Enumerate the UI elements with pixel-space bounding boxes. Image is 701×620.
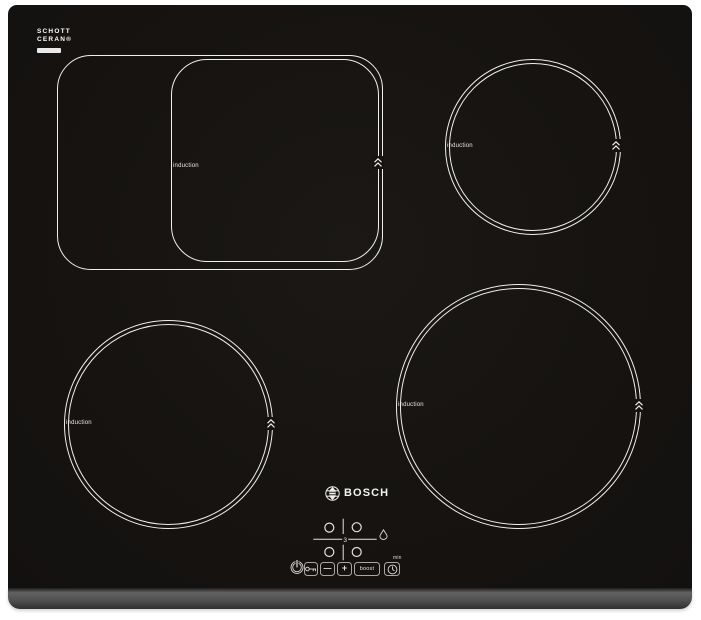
zone-power-display: 3	[308, 513, 388, 565]
cooking-zone-bottom-left-inner-ring	[68, 324, 269, 525]
double-chevron-up-icon	[611, 140, 621, 151]
timer-button[interactable]	[384, 562, 400, 576]
product-photo: SCHOTT CERAN® induction induction	[0, 0, 701, 620]
cooking-zone-bottom-right-inner-ring	[400, 288, 637, 525]
droplet-icon	[379, 529, 388, 540]
induction-label-dual: induction	[173, 163, 199, 170]
ceran-line: CERAN®	[37, 36, 72, 44]
induction-label-bottom-right: induction	[398, 402, 424, 409]
key-icon	[305, 565, 317, 573]
induction-label-top-right: induction	[447, 143, 473, 150]
clock-icon	[387, 564, 398, 575]
cooking-zone-top-right-inner-ring	[449, 63, 617, 231]
boost-marker-bottom-left	[265, 417, 277, 430]
timer-unit-label: min	[393, 555, 402, 561]
induction-label-bottom-left: induction	[66, 420, 92, 427]
child-lock-button[interactable]	[304, 562, 318, 576]
bosch-armature-icon	[325, 486, 340, 501]
plus-button[interactable]: +	[337, 562, 352, 576]
boost-marker-bottom-right	[633, 399, 645, 412]
boost-button[interactable]: boost	[354, 562, 380, 576]
double-chevron-up-icon	[634, 400, 644, 411]
boost-marker-dual	[372, 156, 384, 169]
boost-marker-top-right	[610, 139, 622, 152]
cooktop-glass: SCHOTT CERAN® induction induction	[8, 5, 692, 589]
minus-button[interactable]: —	[320, 562, 335, 576]
power-level-digit: 3	[343, 537, 347, 544]
front-trim	[8, 588, 692, 609]
ceran-badge	[37, 48, 61, 53]
schott-ceran-logo: SCHOTT CERAN®	[37, 28, 72, 53]
double-chevron-up-icon	[266, 418, 276, 429]
brand-name: BOSCH	[344, 486, 389, 501]
schott-line: SCHOTT	[37, 28, 72, 36]
power-button[interactable]	[289, 559, 305, 575]
double-chevron-up-icon	[373, 157, 383, 168]
cooking-zone-dual-inner	[171, 59, 379, 262]
bosch-logo: BOSCH	[325, 486, 389, 501]
